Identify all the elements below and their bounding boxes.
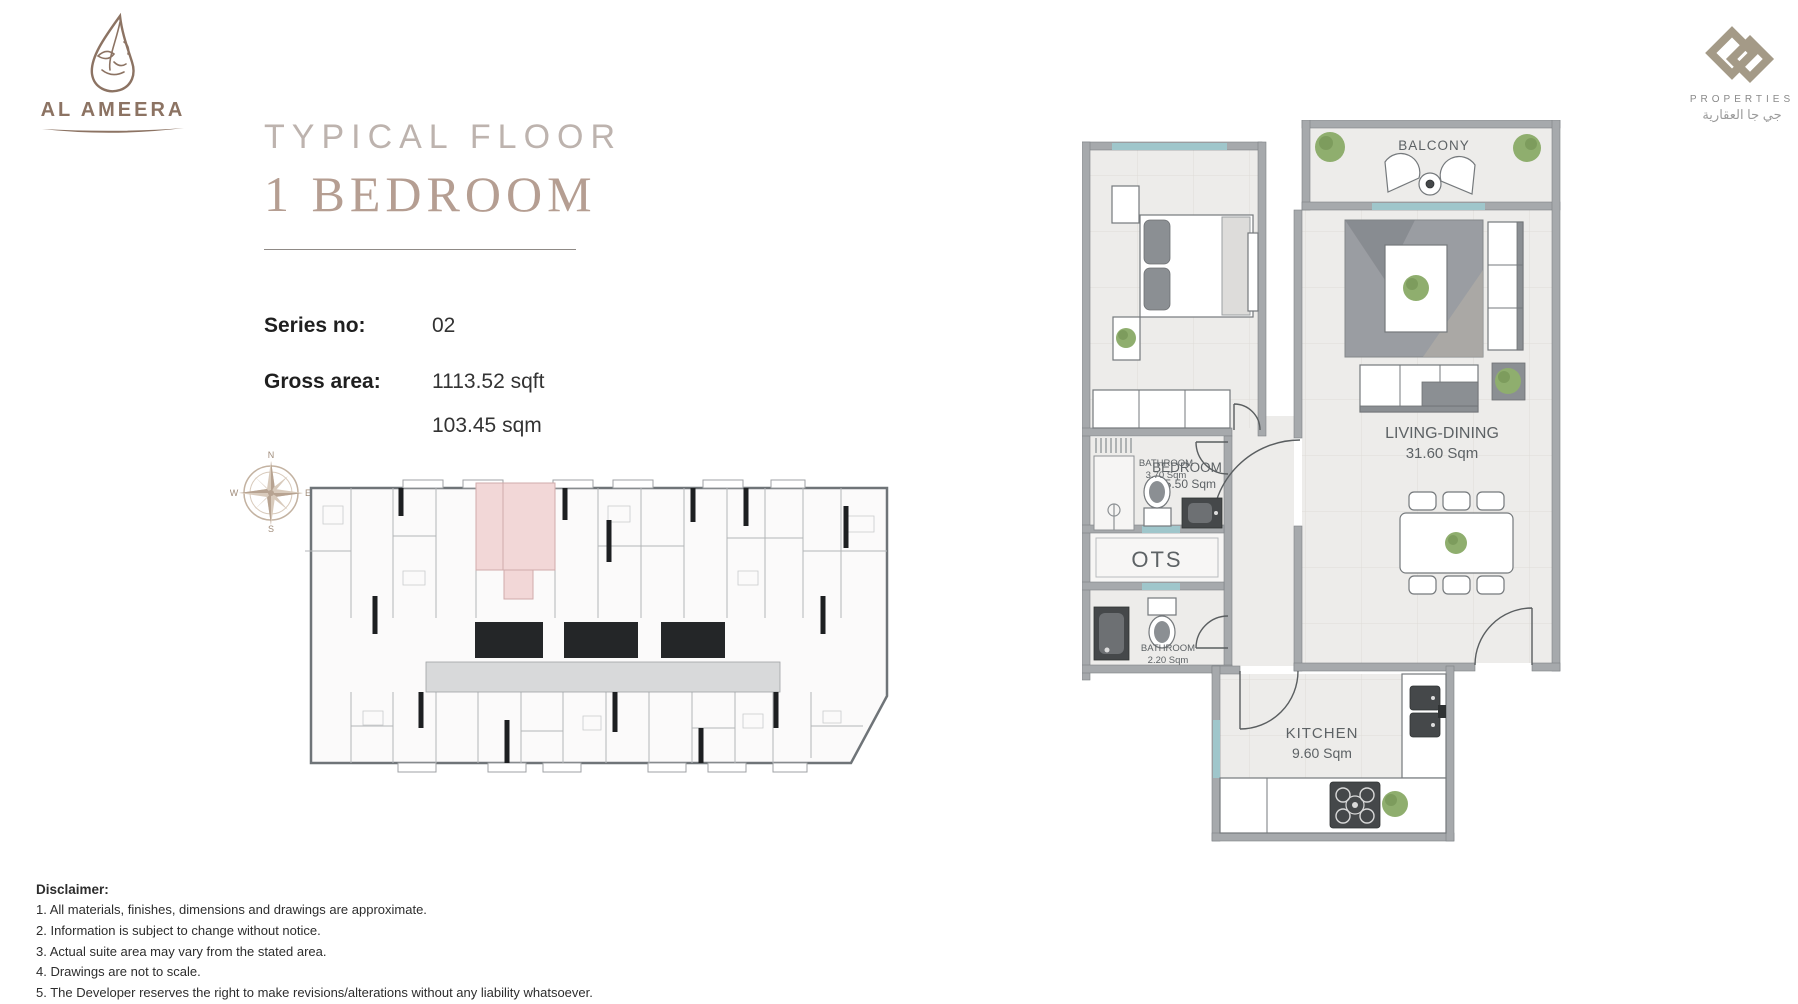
side-sofa xyxy=(1488,222,1523,350)
disclaimer-item: 4. Drawings are not to scale. xyxy=(36,962,593,983)
disclaimer-heading: Disclaimer: xyxy=(36,882,593,897)
bathroom1-label: BATHROOM xyxy=(1139,458,1193,469)
pillow xyxy=(1144,268,1170,310)
disclaimer-item: 3. Actual suite area may vary from the s… xyxy=(36,942,593,963)
sink xyxy=(1182,498,1222,528)
brochure-page: AL AMEERA PROPERTIES جي جا العقارية TYPI… xyxy=(0,0,1798,1004)
disclaimer-item: 5. The Developer reserves the right to m… xyxy=(36,983,593,1004)
series-value: 02 xyxy=(432,314,455,338)
gj-properties-diamond-icon xyxy=(1705,26,1779,88)
page-title: 1 BEDROOM xyxy=(264,165,622,223)
core-block xyxy=(475,622,543,658)
kitchen-label: KITCHEN xyxy=(1286,725,1359,742)
disclaimer: Disclaimer: 1. All materials, finishes, … xyxy=(36,882,593,1004)
plant-icon xyxy=(1385,794,1397,806)
dining-chair xyxy=(1477,492,1504,510)
bathroom2-label: BATHROOM xyxy=(1141,643,1195,654)
bedroom-window xyxy=(1112,143,1227,150)
kitchen-window xyxy=(1213,720,1220,778)
plant-icon xyxy=(1406,278,1418,290)
gross-area-sqm: 103.45 sqm xyxy=(432,414,544,438)
series-row: Series no: 02 xyxy=(264,314,544,338)
toilet xyxy=(1148,598,1176,648)
al-ameera-droplet-icon xyxy=(28,12,198,96)
gross-area-label: Gross area: xyxy=(264,370,432,438)
balcony-table-center xyxy=(1426,180,1434,188)
compass-s: S xyxy=(268,524,274,532)
bathroom1-vent xyxy=(1142,526,1180,533)
tv-console xyxy=(1248,233,1258,311)
sink xyxy=(1094,607,1129,660)
wardrobe xyxy=(1093,390,1230,428)
gross-area-values: 1113.52 sqft 103.45 sqm xyxy=(432,370,544,438)
bathroom2-area: 2.20 Sqm xyxy=(1148,655,1189,666)
ots-label: OTS xyxy=(1131,547,1182,572)
pillow xyxy=(1144,220,1170,264)
plant-icon xyxy=(1118,330,1128,340)
unit-specs: Series no: 02 Gross area: 1113.52 sqft 1… xyxy=(264,314,544,470)
title-block: TYPICAL FLOOR 1 BEDROOM xyxy=(264,118,622,250)
al-ameera-logo: AL AMEERA xyxy=(28,12,198,140)
page-title-kicker: TYPICAL FLOOR xyxy=(264,118,622,157)
kitchen-area: 9.60 Sqm xyxy=(1292,745,1352,761)
plant-icon xyxy=(1319,136,1333,150)
unit-floor-plan: BEDROOM 15.50 Sqm BALCONY xyxy=(1082,120,1562,848)
balcony-sliding-door xyxy=(1372,203,1485,210)
dining-chair xyxy=(1477,576,1504,594)
typical-floor-key-plan xyxy=(303,476,895,782)
toilet xyxy=(1144,476,1171,526)
gross-area-row: Gross area: 1113.52 sqft 103.45 sqm xyxy=(264,370,544,438)
bedside-table xyxy=(1112,186,1139,223)
core-block xyxy=(661,622,725,658)
properties-wordmark: PROPERTIES xyxy=(1682,94,1798,105)
al-ameera-swoosh xyxy=(38,125,188,135)
properties-arabic-text: جي جا العقارية xyxy=(1682,107,1798,123)
living-label: LIVING-DINING xyxy=(1385,425,1499,442)
bed-throw xyxy=(1222,217,1250,315)
dining-chair xyxy=(1409,576,1436,594)
dining-chair xyxy=(1443,492,1470,510)
ots-vent xyxy=(1142,583,1180,590)
living-area: 31.60 Sqm xyxy=(1406,445,1479,462)
balcony-label: BALCONY xyxy=(1398,138,1470,153)
core-block xyxy=(564,622,638,658)
compass-w: W xyxy=(230,488,239,498)
al-ameera-wordmark: AL AMEERA xyxy=(28,99,198,122)
title-divider xyxy=(264,249,576,250)
compass-rose: N E S W xyxy=(230,450,312,532)
gj-properties-logo: PROPERTIES جي جا العقارية xyxy=(1682,26,1798,123)
gross-area-sqft: 1113.52 sqft xyxy=(432,370,544,394)
series-label: Series no: xyxy=(264,314,432,338)
dining-chair xyxy=(1409,492,1436,510)
compass-star xyxy=(239,461,303,525)
dining-set xyxy=(1400,492,1513,594)
plant-icon xyxy=(1525,138,1537,150)
stove xyxy=(1330,782,1380,828)
disclaimer-item: 2. Information is subject to change with… xyxy=(36,921,593,942)
disclaimer-item: 1. All materials, finishes, dimensions a… xyxy=(36,900,593,921)
bottom-sofa xyxy=(1360,365,1478,412)
compass-n: N xyxy=(268,450,275,460)
plant-icon xyxy=(1448,535,1458,545)
corridor xyxy=(426,662,780,692)
plant-box xyxy=(1492,363,1525,400)
dining-chair xyxy=(1443,576,1470,594)
bathroom1-area: 3.70 Sqm xyxy=(1146,470,1187,481)
